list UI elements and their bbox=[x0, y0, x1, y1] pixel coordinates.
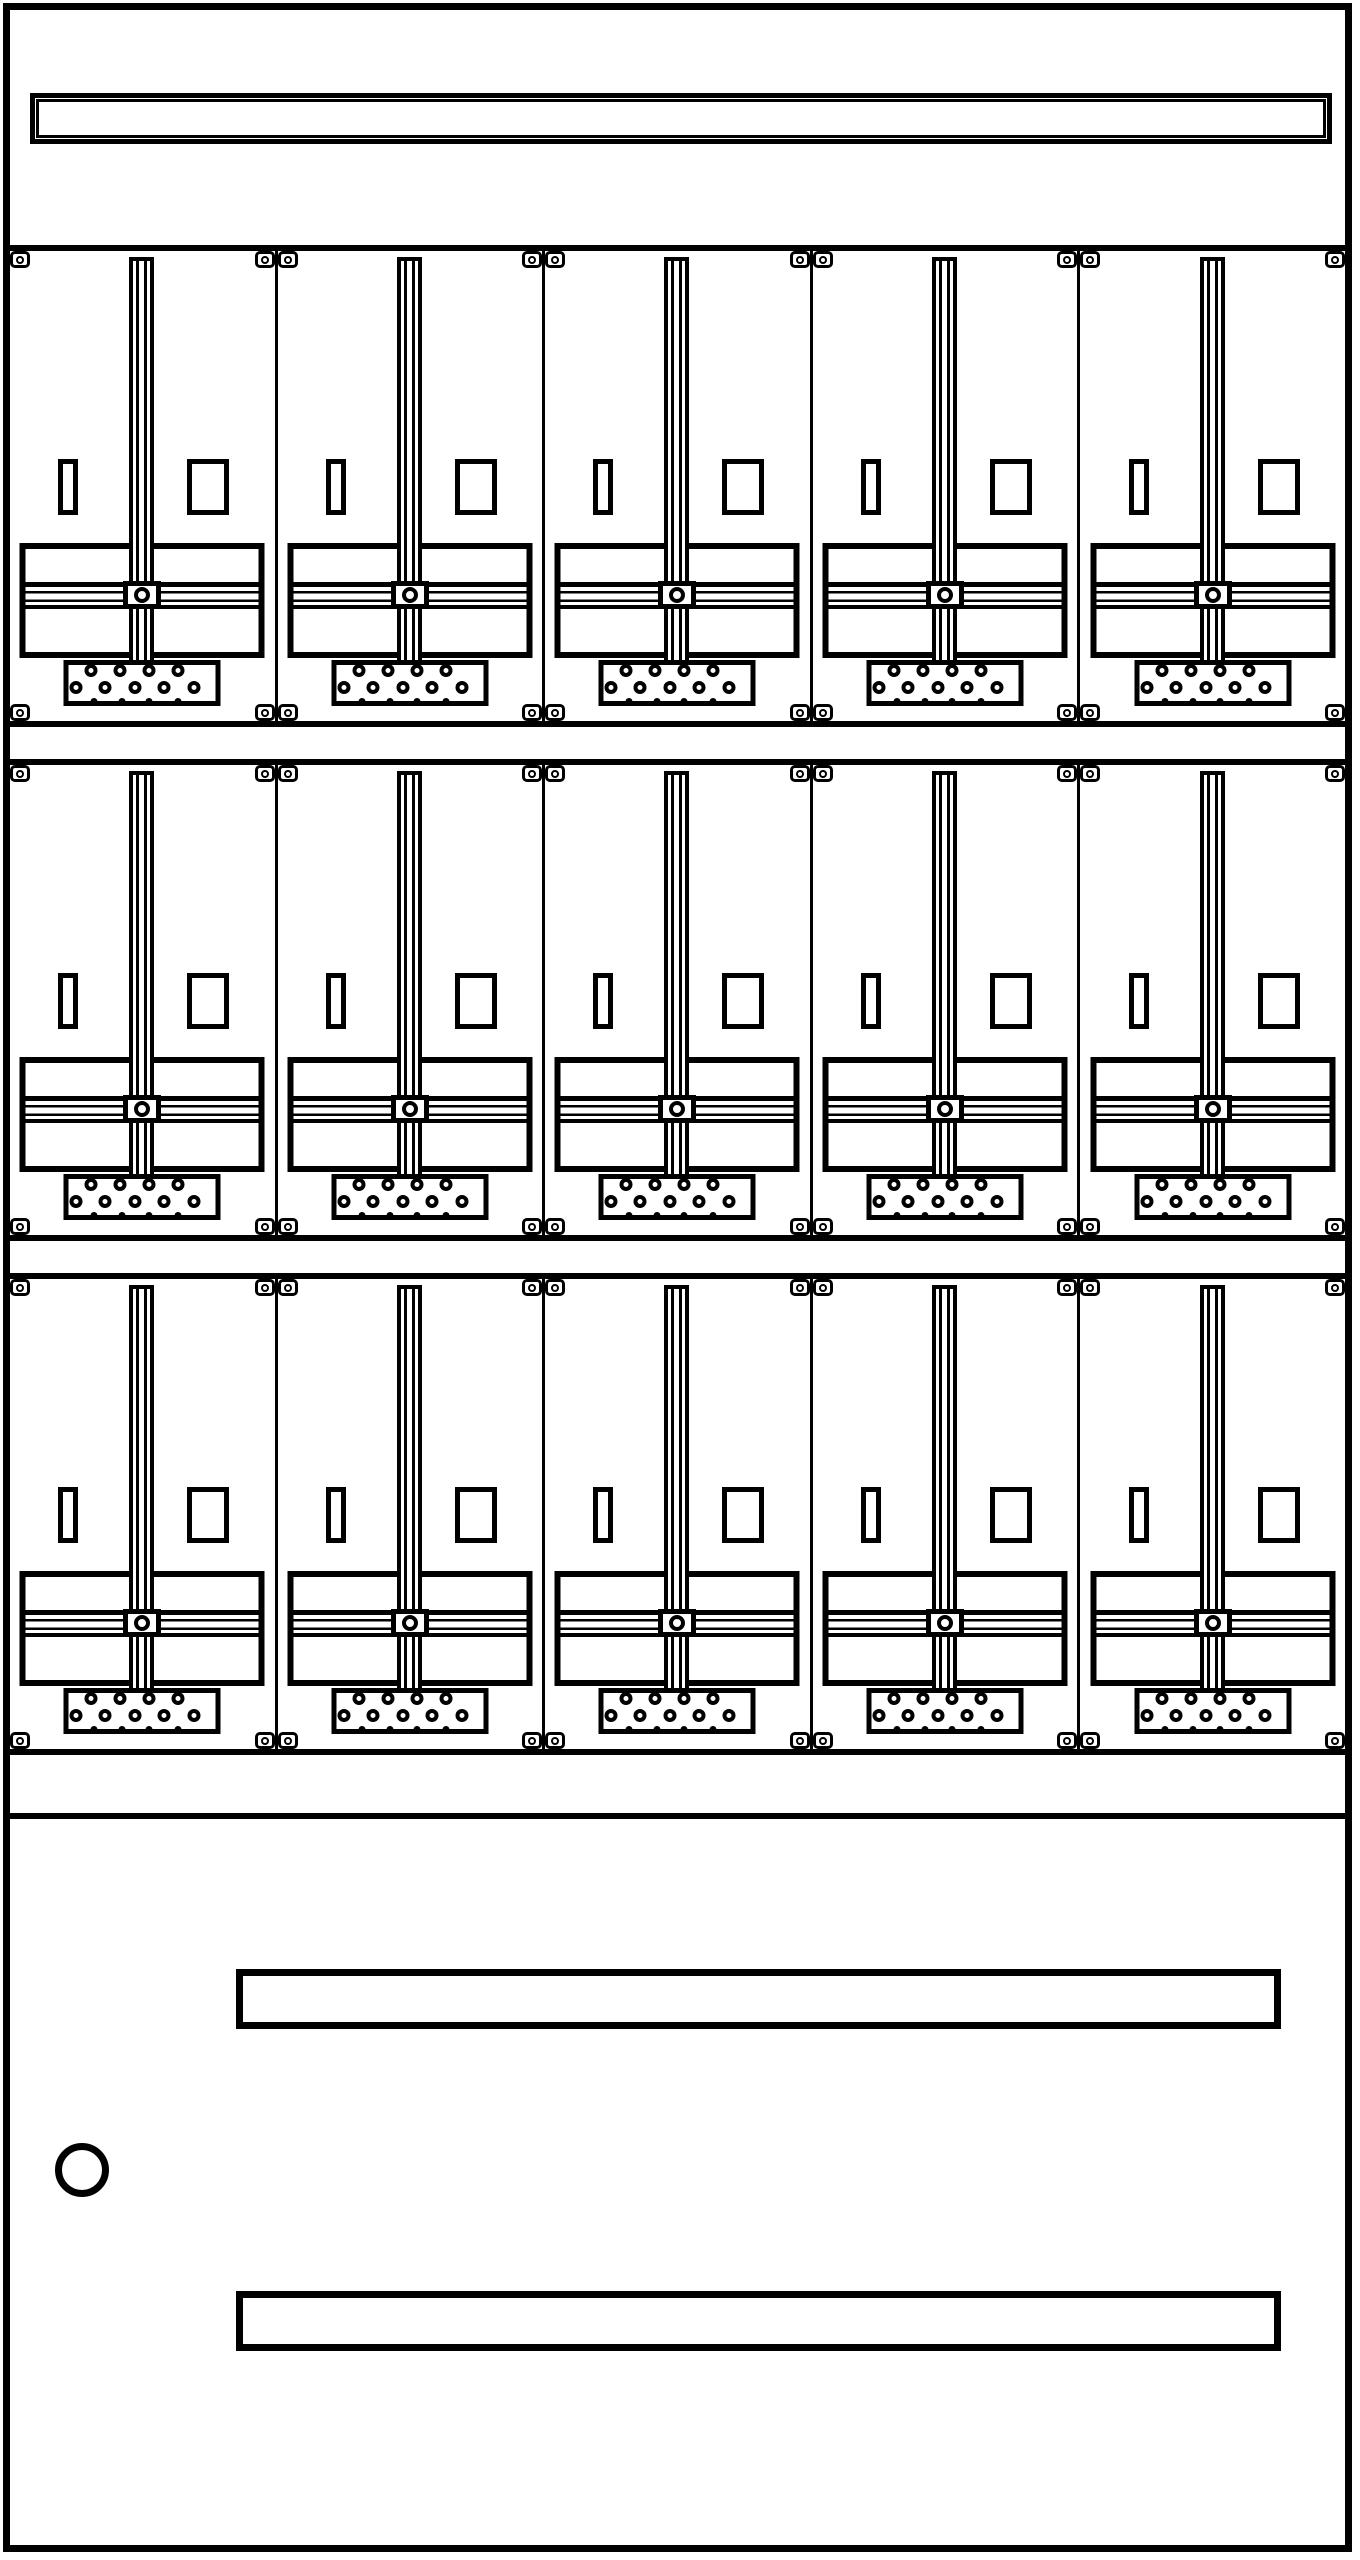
fixing-tab-top-left bbox=[545, 1279, 565, 1296]
terminal-hole-ring bbox=[1169, 681, 1182, 694]
fixing-tab-top-left bbox=[813, 1279, 833, 1296]
terminal-hole-dot bbox=[1161, 1212, 1168, 1219]
terminal-hole-ring bbox=[70, 1709, 83, 1722]
center-fixing-square bbox=[391, 581, 429, 609]
terminal-hole-dot bbox=[442, 698, 449, 705]
terminal-hole-ring bbox=[888, 1692, 901, 1705]
fixing-tab-top-right bbox=[522, 1279, 542, 1296]
terminal-hole-ring bbox=[1169, 1195, 1182, 1208]
meter-cell bbox=[545, 765, 813, 1235]
terminal-hole-ring bbox=[352, 1692, 365, 1705]
terminal-hole-ring bbox=[1258, 1195, 1271, 1208]
terminal-hole-ring bbox=[85, 1178, 98, 1191]
screw-hole-icon bbox=[1086, 1223, 1094, 1231]
fixing-tab-bottom-left bbox=[10, 1732, 30, 1749]
terminal-hole-ring bbox=[664, 681, 677, 694]
center-fixing-square bbox=[123, 1609, 161, 1637]
screw-hole-icon bbox=[528, 770, 536, 778]
left-slot bbox=[1129, 973, 1149, 1029]
terminal-hole-ring bbox=[975, 1178, 988, 1191]
terminal-hole-ring bbox=[605, 1195, 618, 1208]
fixing-tab-bottom-left bbox=[545, 704, 565, 721]
terminal-hole-dot bbox=[626, 1726, 633, 1733]
screw-hole-icon bbox=[261, 1223, 269, 1231]
terminal-hole-ring bbox=[1199, 1195, 1212, 1208]
meter-cell bbox=[1080, 765, 1345, 1235]
terminal-hole-ring bbox=[158, 681, 171, 694]
terminal-hole-dot bbox=[146, 1212, 153, 1219]
center-fixing-square bbox=[1194, 581, 1232, 609]
right-slot bbox=[722, 973, 764, 1029]
screw-hole-icon bbox=[528, 1284, 536, 1292]
terminal-hole-dot bbox=[386, 1212, 393, 1219]
terminal-hole-ring bbox=[723, 681, 736, 694]
terminal-hole-dot bbox=[978, 698, 985, 705]
door-slot-bottom bbox=[236, 2291, 1281, 2351]
terminal-hole-ring bbox=[455, 1709, 468, 1722]
terminal-hole-ring bbox=[143, 1692, 156, 1705]
screw-hole-icon bbox=[1063, 256, 1071, 264]
screw-hole-icon bbox=[261, 256, 269, 264]
terminal-hole-ring bbox=[1155, 1692, 1168, 1705]
screw-hole-icon bbox=[1063, 1284, 1071, 1292]
terminal-hole-ring bbox=[425, 1709, 438, 1722]
fixing-tab-top-left bbox=[1080, 251, 1100, 268]
meter-cell bbox=[278, 1279, 546, 1749]
terminal-hole-ring bbox=[410, 1178, 423, 1191]
fixing-screw-icon bbox=[937, 1615, 953, 1631]
terminal-hole-ring bbox=[439, 1692, 452, 1705]
left-slot bbox=[593, 1487, 613, 1543]
left-slot bbox=[326, 973, 346, 1029]
meter-cell bbox=[278, 251, 546, 721]
terminal-hole-dot bbox=[1189, 1726, 1196, 1733]
screw-hole-icon bbox=[819, 1223, 827, 1231]
meter-cell bbox=[10, 1279, 278, 1749]
terminal-hole-ring bbox=[678, 1692, 691, 1705]
terminal-hole-ring bbox=[1242, 1178, 1255, 1191]
terminal-hole-dot bbox=[358, 1726, 365, 1733]
fixing-tab-bottom-right bbox=[1057, 1218, 1077, 1235]
terminal-hole-dot bbox=[626, 698, 633, 705]
left-slot bbox=[326, 459, 346, 515]
terminal-hole-ring bbox=[975, 664, 988, 677]
busbar-rail bbox=[30, 93, 1332, 144]
terminal-hole-dot bbox=[1161, 1726, 1168, 1733]
screw-hole-icon bbox=[1331, 1737, 1339, 1745]
meter-cell bbox=[10, 765, 278, 1235]
screw-hole-icon bbox=[1086, 1284, 1094, 1292]
terminal-hole-ring bbox=[1184, 664, 1197, 677]
terminal-hole-dot bbox=[894, 698, 901, 705]
terminal-hole-ring bbox=[396, 681, 409, 694]
fixing-tab-top-left bbox=[278, 765, 298, 782]
fixing-tab-top-right bbox=[1325, 1279, 1345, 1296]
terminal-hole-ring bbox=[99, 1709, 112, 1722]
terminal-hole-ring bbox=[1184, 1692, 1197, 1705]
terminal-hole-ring bbox=[1213, 1178, 1226, 1191]
center-fixing-square bbox=[926, 581, 964, 609]
terminal-hole-dot bbox=[978, 1726, 985, 1733]
terminal-hole-ring bbox=[678, 1178, 691, 1191]
terminal-hole-ring bbox=[902, 1195, 915, 1208]
screw-hole-icon bbox=[1063, 1737, 1071, 1745]
right-slot bbox=[187, 459, 229, 515]
terminal-hole-ring bbox=[1140, 1709, 1153, 1722]
terminal-hole-ring bbox=[1213, 664, 1226, 677]
fixing-tab-top-left bbox=[278, 1279, 298, 1296]
terminal-hole-ring bbox=[693, 1195, 706, 1208]
terminal-hole-dot bbox=[175, 1212, 182, 1219]
right-slot bbox=[187, 1487, 229, 1543]
terminal-hole-dot bbox=[922, 698, 929, 705]
terminal-block bbox=[599, 1688, 756, 1734]
terminal-hole-ring bbox=[678, 664, 691, 677]
fixing-tab-top-left bbox=[813, 251, 833, 268]
terminal-hole-ring bbox=[1155, 1178, 1168, 1191]
terminal-hole-dot bbox=[358, 1212, 365, 1219]
screw-hole-icon bbox=[796, 770, 804, 778]
terminal-hole-ring bbox=[188, 1195, 201, 1208]
terminal-hole-ring bbox=[961, 1709, 974, 1722]
screw-hole-icon bbox=[819, 1284, 827, 1292]
fixing-tab-bottom-right bbox=[1057, 1732, 1077, 1749]
terminal-hole-ring bbox=[1242, 1692, 1255, 1705]
terminal-hole-ring bbox=[381, 1692, 394, 1705]
terminal-block bbox=[867, 1174, 1024, 1220]
screw-hole-icon bbox=[528, 1223, 536, 1231]
terminal-hole-ring bbox=[158, 1709, 171, 1722]
terminal-hole-ring bbox=[381, 1178, 394, 1191]
terminal-block bbox=[599, 1174, 756, 1220]
terminal-hole-ring bbox=[188, 681, 201, 694]
screw-hole-icon bbox=[1063, 1223, 1071, 1231]
terminal-hole-ring bbox=[917, 664, 930, 677]
screw-hole-icon bbox=[551, 256, 559, 264]
screw-hole-icon bbox=[1331, 1284, 1339, 1292]
center-fixing-square bbox=[926, 1095, 964, 1123]
fixing-tab-bottom-right bbox=[255, 704, 275, 721]
screw-hole-icon bbox=[16, 1737, 24, 1745]
fixing-tab-bottom-left bbox=[1080, 1732, 1100, 1749]
terminal-hole-ring bbox=[396, 1195, 409, 1208]
terminal-hole-ring bbox=[1228, 1709, 1241, 1722]
terminal-block bbox=[64, 1688, 221, 1734]
left-slot bbox=[326, 1487, 346, 1543]
screw-hole-icon bbox=[528, 256, 536, 264]
fixing-tab-top-right bbox=[1325, 251, 1345, 268]
fixing-screw-icon bbox=[1205, 1101, 1221, 1117]
fixing-tab-bottom-left bbox=[278, 1218, 298, 1235]
terminal-hole-ring bbox=[143, 1178, 156, 1191]
terminal-hole-ring bbox=[707, 664, 720, 677]
terminal-hole-ring bbox=[707, 1178, 720, 1191]
terminal-hole-ring bbox=[85, 1692, 98, 1705]
fixing-tab-top-right bbox=[522, 251, 542, 268]
fixing-screw-icon bbox=[937, 587, 953, 603]
terminal-hole-ring bbox=[873, 1195, 886, 1208]
center-fixing-square bbox=[658, 581, 696, 609]
terminal-hole-ring bbox=[425, 1195, 438, 1208]
screw-hole-icon bbox=[1086, 1737, 1094, 1745]
terminal-hole-dot bbox=[1189, 1212, 1196, 1219]
terminal-hole-dot bbox=[949, 1212, 956, 1219]
meter-cell bbox=[1080, 251, 1345, 721]
fixing-tab-bottom-left bbox=[1080, 1218, 1100, 1235]
fixing-tab-top-left bbox=[10, 765, 30, 782]
fixing-tab-bottom-right bbox=[1057, 704, 1077, 721]
left-slot bbox=[861, 459, 881, 515]
terminal-hole-ring bbox=[649, 1692, 662, 1705]
terminal-hole-ring bbox=[975, 1692, 988, 1705]
terminal-hole-dot bbox=[681, 1212, 688, 1219]
fixing-tab-bottom-left bbox=[10, 704, 30, 721]
left-slot bbox=[593, 459, 613, 515]
fixing-tab-bottom-right bbox=[790, 1218, 810, 1235]
meter-row bbox=[10, 1273, 1345, 1755]
terminal-hole-ring bbox=[1140, 681, 1153, 694]
fixing-tab-bottom-right bbox=[1325, 1732, 1345, 1749]
terminal-hole-dot bbox=[681, 1726, 688, 1733]
terminal-hole-ring bbox=[337, 1195, 350, 1208]
terminal-block bbox=[1134, 1688, 1291, 1734]
terminal-hole-ring bbox=[634, 1195, 647, 1208]
screw-hole-icon bbox=[284, 256, 292, 264]
terminal-hole-ring bbox=[114, 1178, 127, 1191]
terminal-hole-ring bbox=[620, 1178, 633, 1191]
terminal-hole-ring bbox=[410, 1692, 423, 1705]
terminal-hole-ring bbox=[439, 664, 452, 677]
terminal-hole-ring bbox=[946, 664, 959, 677]
terminal-hole-ring bbox=[381, 664, 394, 677]
right-slot bbox=[455, 973, 497, 1029]
screw-hole-icon bbox=[551, 709, 559, 717]
terminal-hole-ring bbox=[902, 681, 915, 694]
screw-hole-icon bbox=[1331, 770, 1339, 778]
terminal-hole-dot bbox=[1245, 1212, 1252, 1219]
door-lock-circle bbox=[55, 2143, 109, 2197]
meter-cell bbox=[813, 251, 1081, 721]
fixing-tab-bottom-right bbox=[522, 1732, 542, 1749]
meter-row bbox=[10, 245, 1345, 727]
terminal-hole-ring bbox=[366, 1709, 379, 1722]
right-slot bbox=[1258, 1487, 1300, 1543]
terminal-hole-dot bbox=[710, 1212, 717, 1219]
terminal-hole-ring bbox=[172, 1692, 185, 1705]
screw-hole-icon bbox=[1063, 709, 1071, 717]
terminal-hole-ring bbox=[396, 1709, 409, 1722]
screw-hole-icon bbox=[16, 709, 24, 717]
screw-hole-icon bbox=[16, 1223, 24, 1231]
left-slot bbox=[58, 973, 78, 1029]
screw-hole-icon bbox=[284, 1223, 292, 1231]
terminal-hole-ring bbox=[664, 1195, 677, 1208]
fixing-screw-icon bbox=[134, 1615, 150, 1631]
fixing-tab-top-left bbox=[1080, 765, 1100, 782]
terminal-hole-ring bbox=[129, 1709, 142, 1722]
fixing-tab-top-left bbox=[545, 251, 565, 268]
screw-hole-icon bbox=[551, 1223, 559, 1231]
fixing-tab-bottom-left bbox=[545, 1732, 565, 1749]
screw-hole-icon bbox=[16, 1284, 24, 1292]
screw-hole-icon bbox=[796, 1223, 804, 1231]
center-fixing-square bbox=[123, 1095, 161, 1123]
screw-hole-icon bbox=[528, 709, 536, 717]
terminal-hole-dot bbox=[922, 1212, 929, 1219]
center-fixing-square bbox=[1194, 1095, 1232, 1123]
terminal-hole-ring bbox=[917, 1692, 930, 1705]
terminal-hole-ring bbox=[605, 681, 618, 694]
center-fixing-square bbox=[658, 1609, 696, 1637]
fixing-tab-bottom-right bbox=[1325, 704, 1345, 721]
terminal-hole-ring bbox=[455, 681, 468, 694]
screw-hole-icon bbox=[1086, 256, 1094, 264]
terminal-hole-ring bbox=[1199, 681, 1212, 694]
right-slot bbox=[187, 973, 229, 1029]
screw-hole-icon bbox=[796, 256, 804, 264]
right-slot bbox=[990, 1487, 1032, 1543]
terminal-hole-ring bbox=[917, 1178, 930, 1191]
fixing-screw-icon bbox=[134, 1101, 150, 1117]
terminal-hole-dot bbox=[91, 698, 98, 705]
center-fixing-square bbox=[123, 581, 161, 609]
terminal-hole-ring bbox=[455, 1195, 468, 1208]
screw-hole-icon bbox=[16, 256, 24, 264]
terminal-hole-ring bbox=[337, 681, 350, 694]
terminal-hole-dot bbox=[1216, 1726, 1223, 1733]
fixing-screw-icon bbox=[937, 1101, 953, 1117]
fixing-screw-icon bbox=[134, 587, 150, 603]
meter-cell bbox=[545, 1279, 813, 1749]
terminal-hole-dot bbox=[654, 698, 661, 705]
terminal-hole-ring bbox=[649, 1178, 662, 1191]
terminal-hole-ring bbox=[366, 1195, 379, 1208]
left-slot bbox=[861, 973, 881, 1029]
fixing-tab-top-left bbox=[813, 765, 833, 782]
terminal-hole-dot bbox=[1216, 1212, 1223, 1219]
terminal-hole-ring bbox=[172, 664, 185, 677]
screw-hole-icon bbox=[1331, 1223, 1339, 1231]
fixing-screw-icon bbox=[669, 587, 685, 603]
screw-hole-icon bbox=[819, 1737, 827, 1745]
fixing-tab-top-right bbox=[255, 1279, 275, 1296]
terminal-hole-ring bbox=[991, 1709, 1004, 1722]
right-slot bbox=[1258, 973, 1300, 1029]
screw-hole-icon bbox=[284, 709, 292, 717]
center-fixing-square bbox=[658, 1095, 696, 1123]
terminal-hole-ring bbox=[932, 1195, 945, 1208]
terminal-hole-ring bbox=[649, 664, 662, 677]
terminal-block bbox=[64, 1174, 221, 1220]
terminal-hole-ring bbox=[366, 681, 379, 694]
fixing-tab-top-right bbox=[255, 765, 275, 782]
terminal-hole-ring bbox=[693, 1709, 706, 1722]
terminal-hole-ring bbox=[70, 681, 83, 694]
terminal-hole-ring bbox=[693, 681, 706, 694]
terminal-hole-dot bbox=[91, 1726, 98, 1733]
terminal-hole-ring bbox=[337, 1709, 350, 1722]
fixing-tab-top-right bbox=[790, 251, 810, 268]
fixing-tab-bottom-left bbox=[278, 704, 298, 721]
terminal-hole-ring bbox=[723, 1709, 736, 1722]
fixing-tab-top-left bbox=[1080, 1279, 1100, 1296]
fixing-tab-bottom-right bbox=[255, 1218, 275, 1235]
terminal-hole-ring bbox=[158, 1195, 171, 1208]
terminal-hole-dot bbox=[1161, 698, 1168, 705]
cabinet-frame bbox=[3, 3, 1352, 2552]
right-slot bbox=[990, 973, 1032, 1029]
terminal-hole-dot bbox=[91, 1212, 98, 1219]
terminal-block bbox=[599, 660, 756, 706]
fixing-tab-bottom-right bbox=[522, 704, 542, 721]
terminal-hole-ring bbox=[888, 664, 901, 677]
screw-hole-icon bbox=[551, 1284, 559, 1292]
meter-cell bbox=[1080, 1279, 1345, 1749]
fixing-tab-top-right bbox=[1057, 765, 1077, 782]
left-slot bbox=[593, 973, 613, 1029]
meter-cell bbox=[813, 1279, 1081, 1749]
terminal-hole-dot bbox=[413, 698, 420, 705]
fixing-tab-top-right bbox=[255, 251, 275, 268]
terminal-hole-ring bbox=[70, 1195, 83, 1208]
terminal-hole-ring bbox=[946, 1178, 959, 1191]
terminal-hole-dot bbox=[119, 698, 126, 705]
left-slot bbox=[58, 1487, 78, 1543]
terminal-block bbox=[331, 660, 488, 706]
terminal-block bbox=[331, 1688, 488, 1734]
center-fixing-square bbox=[926, 1609, 964, 1637]
fixing-tab-bottom-left bbox=[813, 704, 833, 721]
terminal-hole-dot bbox=[119, 1212, 126, 1219]
screw-hole-icon bbox=[1063, 770, 1071, 778]
screw-hole-icon bbox=[551, 1737, 559, 1745]
terminal-hole-ring bbox=[352, 1178, 365, 1191]
center-fixing-square bbox=[391, 1609, 429, 1637]
screw-hole-icon bbox=[261, 770, 269, 778]
terminal-hole-dot bbox=[710, 698, 717, 705]
fixing-screw-icon bbox=[1205, 587, 1221, 603]
right-slot bbox=[1258, 459, 1300, 515]
fixing-screw-icon bbox=[402, 1615, 418, 1631]
meter-cell bbox=[278, 765, 546, 1235]
terminal-hole-ring bbox=[1258, 681, 1271, 694]
terminal-hole-ring bbox=[129, 681, 142, 694]
terminal-hole-dot bbox=[386, 698, 393, 705]
left-slot bbox=[58, 459, 78, 515]
fixing-screw-icon bbox=[402, 1101, 418, 1117]
terminal-hole-dot bbox=[175, 1726, 182, 1733]
screw-hole-icon bbox=[819, 770, 827, 778]
fixing-tab-top-right bbox=[1057, 1279, 1077, 1296]
terminal-hole-ring bbox=[620, 1692, 633, 1705]
terminal-hole-dot bbox=[949, 698, 956, 705]
terminal-hole-ring bbox=[114, 1692, 127, 1705]
fixing-tab-top-left bbox=[10, 251, 30, 268]
terminal-hole-dot bbox=[386, 1726, 393, 1733]
terminal-hole-dot bbox=[146, 698, 153, 705]
fixing-tab-top-right bbox=[1057, 251, 1077, 268]
terminal-hole-dot bbox=[1245, 1726, 1252, 1733]
terminal-hole-ring bbox=[707, 1692, 720, 1705]
terminal-hole-ring bbox=[902, 1709, 915, 1722]
right-slot bbox=[455, 459, 497, 515]
fixing-tab-bottom-right bbox=[1325, 1218, 1345, 1235]
fixing-tab-bottom-left bbox=[1080, 704, 1100, 721]
meter-cell bbox=[545, 251, 813, 721]
busbar-rail-inner bbox=[36, 99, 1326, 138]
center-fixing-square bbox=[1194, 1609, 1232, 1637]
screw-hole-icon bbox=[1086, 709, 1094, 717]
